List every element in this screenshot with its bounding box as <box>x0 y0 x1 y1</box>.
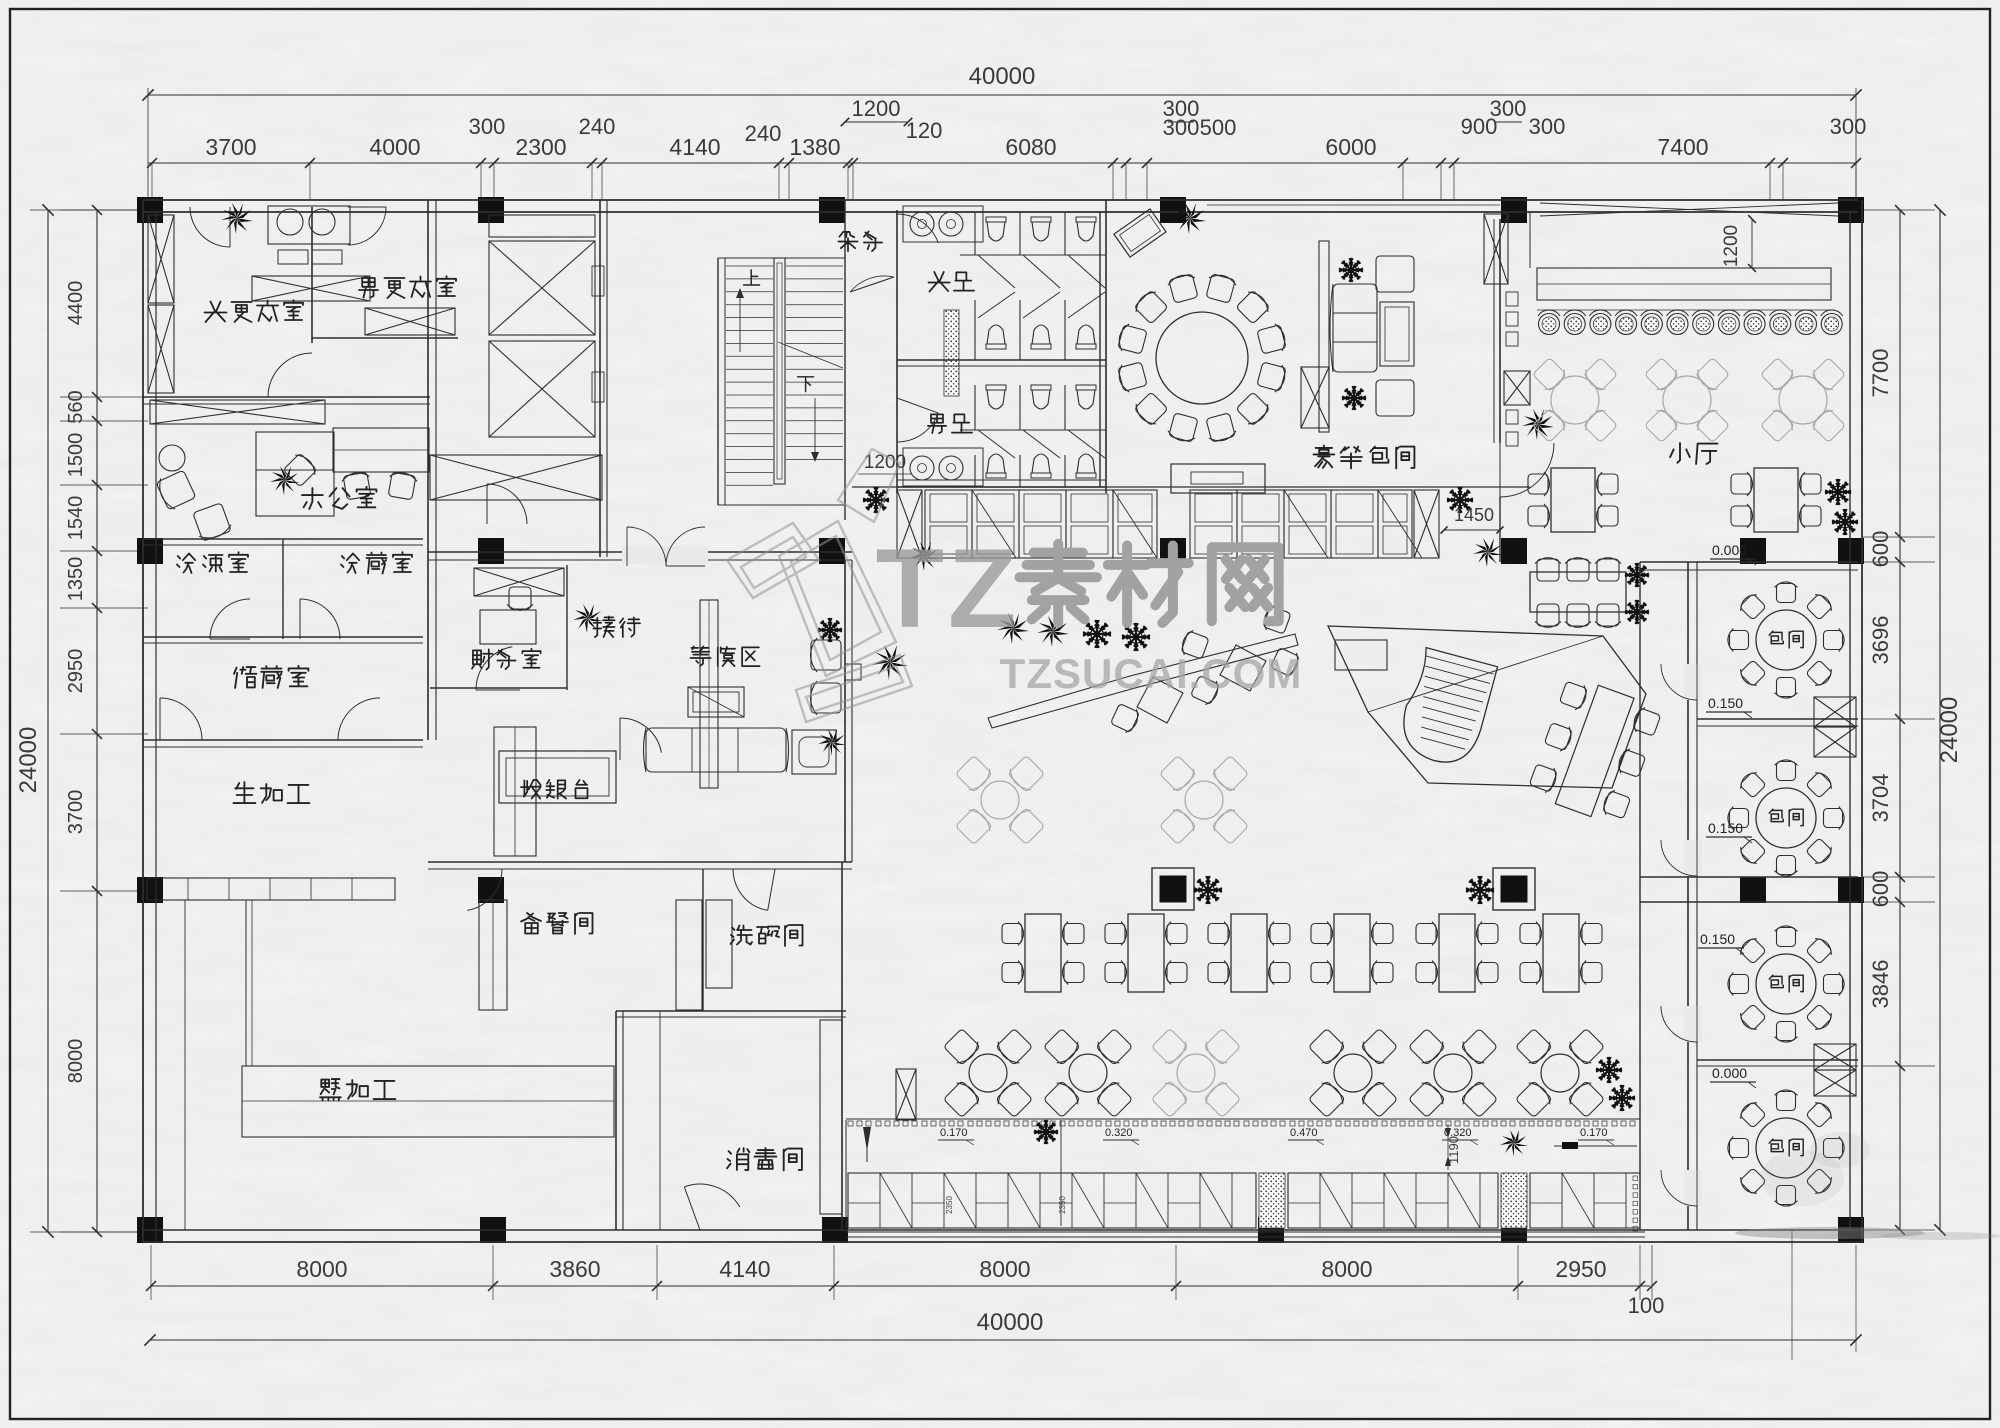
svg-text:900: 900 <box>1461 114 1498 139</box>
svg-text:3700: 3700 <box>205 134 256 160</box>
svg-text:2350: 2350 <box>1058 1196 1067 1214</box>
svg-text:0.000: 0.000 <box>1712 1065 1747 1081</box>
svg-text:4140: 4140 <box>669 134 720 160</box>
svg-text:300: 300 <box>469 114 506 139</box>
svg-text:0.170: 0.170 <box>1580 1127 1608 1139</box>
svg-text:0.150: 0.150 <box>1700 931 1735 947</box>
svg-text:4140: 4140 <box>719 1256 770 1282</box>
svg-text:6080: 6080 <box>1005 134 1056 160</box>
svg-text:40000: 40000 <box>977 1309 1044 1336</box>
svg-text:600: 600 <box>1868 531 1893 568</box>
svg-text:2950: 2950 <box>1555 1256 1606 1282</box>
svg-text:1540: 1540 <box>65 496 87 541</box>
svg-text:2350: 2350 <box>945 1196 954 1214</box>
svg-text:4000: 4000 <box>369 134 420 160</box>
svg-text:24000: 24000 <box>15 727 42 794</box>
svg-text:1450: 1450 <box>1454 505 1494 525</box>
svg-text:3700: 3700 <box>65 790 87 835</box>
svg-text:500: 500 <box>1200 115 1237 140</box>
svg-text:6000: 6000 <box>1325 134 1376 160</box>
svg-text:300: 300 <box>1529 114 1566 139</box>
svg-text:40000: 40000 <box>969 63 1036 90</box>
svg-text:1200: 1200 <box>852 96 901 121</box>
svg-text:3860: 3860 <box>549 1256 600 1282</box>
svg-text:0.150: 0.150 <box>1708 820 1743 836</box>
svg-text:100: 100 <box>1628 1293 1665 1318</box>
svg-text:1200: 1200 <box>1721 225 1742 267</box>
svg-text:8000: 8000 <box>296 1256 347 1282</box>
svg-text:600: 600 <box>1868 871 1893 908</box>
svg-text:1380: 1380 <box>789 134 840 160</box>
svg-text:2300: 2300 <box>515 134 566 160</box>
svg-text:560: 560 <box>65 390 87 423</box>
svg-text:8000: 8000 <box>65 1039 87 1084</box>
svg-text:3704: 3704 <box>1868 774 1893 823</box>
svg-text:7400: 7400 <box>1657 134 1708 160</box>
svg-text:3696: 3696 <box>1868 616 1893 665</box>
svg-text:8000: 8000 <box>979 1256 1030 1282</box>
svg-text:4400: 4400 <box>65 281 87 326</box>
svg-text:24000: 24000 <box>1936 697 1963 764</box>
svg-text:120: 120 <box>906 118 943 143</box>
svg-text:TZSUCAI.COM: TZSUCAI.COM <box>1000 650 1303 697</box>
svg-text:2950: 2950 <box>65 649 87 694</box>
svg-text:3846: 3846 <box>1868 960 1893 1009</box>
svg-text:0.320: 0.320 <box>1105 1127 1133 1139</box>
svg-text:1500: 1500 <box>65 433 87 478</box>
svg-text:0.000: 0.000 <box>1712 542 1747 558</box>
svg-text:TZ: TZ <box>876 526 1021 651</box>
svg-text:0.170: 0.170 <box>940 1127 968 1139</box>
svg-text:8000: 8000 <box>1321 1256 1372 1282</box>
svg-text:240: 240 <box>745 121 782 146</box>
svg-text:0.470: 0.470 <box>1290 1127 1318 1139</box>
svg-text:300: 300 <box>1830 114 1867 139</box>
svg-text:7700: 7700 <box>1868 349 1893 398</box>
svg-text:0.150: 0.150 <box>1708 695 1743 711</box>
svg-text:240: 240 <box>579 114 616 139</box>
svg-text:1350: 1350 <box>65 557 87 602</box>
svg-text:300: 300 <box>1163 115 1200 140</box>
